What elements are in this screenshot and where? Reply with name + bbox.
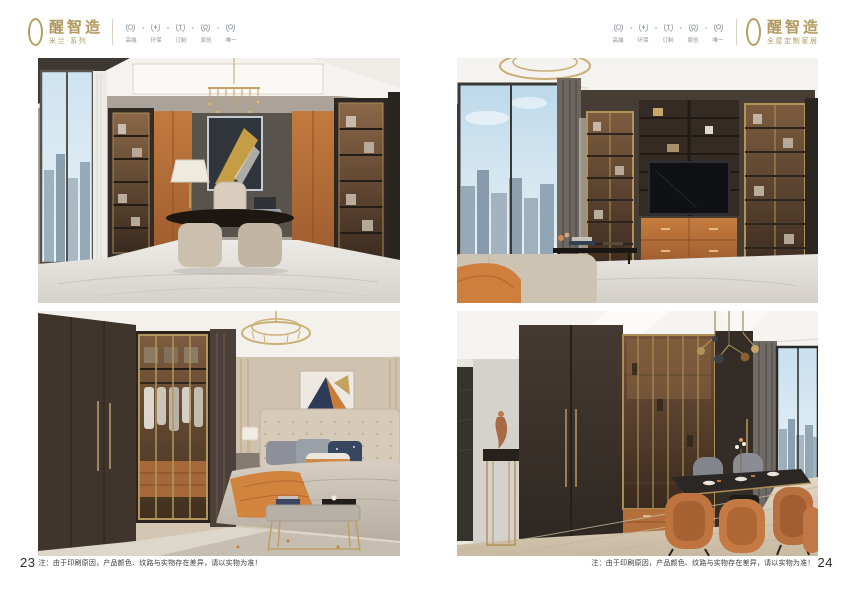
badge-original: 原创 bbox=[197, 21, 214, 44]
photo-dining-room bbox=[457, 311, 818, 556]
badge-separator-dot bbox=[142, 27, 144, 29]
badge-premium: 高端 bbox=[610, 21, 627, 44]
badge-custom: 订制 bbox=[660, 21, 677, 44]
print-disclaimer-right: 注：由于印刷原因，产品颜色、纹路与实物存在差异，请以实物为准！ bbox=[591, 559, 814, 569]
laurel-wreath-icon bbox=[637, 21, 650, 34]
badge-separator-dot bbox=[167, 27, 169, 29]
center-shelving-tv bbox=[639, 100, 739, 216]
series-label: 米兰·系列 bbox=[49, 38, 103, 45]
brand-name: 醒智造 bbox=[49, 20, 103, 35]
footer-right: 注：由于印刷原因，产品颜色、纹路与实物存在差异，请以实物为准！ 24 bbox=[591, 556, 833, 569]
laurel-wreath-icon bbox=[224, 21, 237, 34]
city-view-window bbox=[459, 84, 561, 266]
badge-separator-dot bbox=[630, 27, 632, 29]
brand-logo-left: 醒智造 米兰·系列 bbox=[28, 18, 103, 46]
glass-wardrobe-section bbox=[136, 331, 210, 523]
tall-cabinet bbox=[519, 325, 623, 539]
laurel-wreath-icon bbox=[612, 21, 625, 34]
laurel-wreath-icon bbox=[662, 21, 675, 34]
laurel-wreath-icon bbox=[149, 21, 162, 34]
page-number-left: 23 bbox=[20, 556, 35, 569]
footer-left: 23 注：由于印刷原因，产品颜色、纹路与实物存在差异，请以实物为准！ bbox=[20, 556, 262, 569]
beige-ottoman-orange-throw bbox=[457, 254, 597, 303]
left-doorway bbox=[457, 367, 473, 541]
side-wall bbox=[388, 92, 400, 274]
badge-eco: 环保 bbox=[635, 21, 652, 44]
brand-oval-mark bbox=[28, 18, 43, 46]
badge-row-right: 高端 环保 订制 原创 唯一 bbox=[610, 21, 727, 44]
laurel-wreath-icon bbox=[199, 21, 212, 34]
brand-name: 醒智造 bbox=[767, 20, 821, 35]
header-left: 醒智造 米兰·系列 高端 环保 订制 原创 bbox=[28, 18, 239, 46]
study-room-illustration bbox=[38, 58, 400, 303]
tv-wall-illustration bbox=[457, 58, 818, 303]
badge-separator-dot bbox=[680, 27, 682, 29]
photo-bedroom bbox=[38, 311, 400, 556]
laurel-wreath-icon bbox=[124, 21, 137, 34]
badge-separator-dot bbox=[705, 27, 707, 29]
page-number-right: 24 bbox=[818, 556, 833, 569]
laurel-wreath-icon bbox=[712, 21, 725, 34]
laurel-wreath-icon bbox=[174, 21, 187, 34]
catalog-spread-page: 醒智造 米兰·系列 高端 环保 订制 原创 bbox=[0, 0, 847, 600]
badge-unique: 唯一 bbox=[222, 21, 239, 44]
photo-tv-wall bbox=[457, 58, 818, 303]
print-disclaimer-left: 注：由于印刷原因，产品颜色、纹路与实物存在差异，请以实物为准！ bbox=[38, 559, 261, 569]
badge-custom: 订制 bbox=[172, 21, 189, 44]
badge-separator-dot bbox=[655, 27, 657, 29]
dark-wardrobe bbox=[38, 313, 136, 556]
badge-eco: 环保 bbox=[147, 21, 164, 44]
badge-original: 原创 bbox=[685, 21, 702, 44]
badge-premium: 高端 bbox=[122, 21, 139, 44]
dining-room-illustration bbox=[457, 311, 818, 556]
brand-tagline: 全屋定制家居 bbox=[767, 38, 821, 45]
right-glass-bookcase bbox=[334, 98, 388, 268]
badge-separator-dot bbox=[192, 27, 194, 29]
left-glass-bookcase bbox=[108, 108, 154, 258]
header-right: 高端 环保 订制 原创 唯一 bbox=[610, 18, 821, 46]
orange-drawers bbox=[641, 218, 737, 262]
brand-logo-right: 醒智造 全屋定制家居 bbox=[746, 18, 821, 46]
geometric-artwork bbox=[300, 371, 354, 415]
badge-row-left: 高端 环保 订制 原创 唯一 bbox=[122, 21, 239, 44]
header-divider bbox=[736, 19, 737, 45]
right-glass-cabinet bbox=[745, 104, 805, 270]
white-curtain bbox=[93, 71, 107, 263]
bedroom-illustration bbox=[38, 311, 400, 556]
laurel-wreath-icon bbox=[687, 21, 700, 34]
city-view-window bbox=[777, 347, 818, 483]
header-divider bbox=[112, 19, 113, 45]
city-view-window bbox=[41, 71, 93, 263]
brand-oval-mark bbox=[746, 18, 761, 46]
unit-side-panel bbox=[805, 98, 818, 278]
photo-study-room bbox=[38, 58, 400, 303]
badge-separator-dot bbox=[217, 27, 219, 29]
badge-unique: 唯一 bbox=[710, 21, 727, 44]
